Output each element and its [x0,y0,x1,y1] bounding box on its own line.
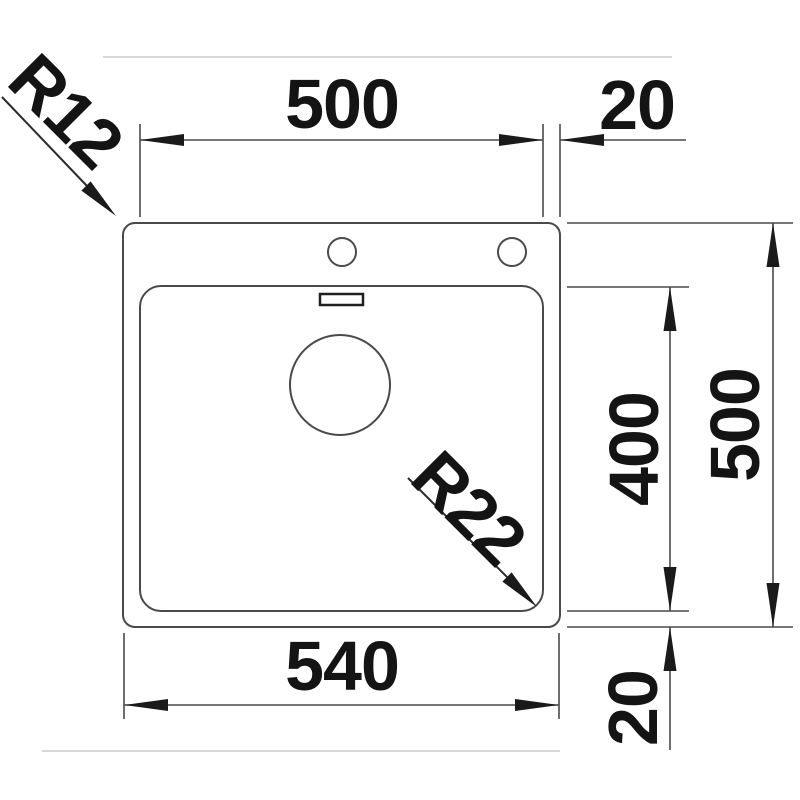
arrowhead-rim-offset-bottom [664,627,677,671]
arrowhead-bowl-depth-top [664,287,677,331]
arrowhead-bowl-width-left [140,134,184,146]
overflow-slot [320,294,363,305]
dimension-label-rim-offset-bottom: 20 [594,670,672,746]
arrowhead-overall-depth-bottom [767,583,780,627]
arrowhead-outer-radius [81,181,116,216]
drain-hole [290,335,390,435]
tap-hole-left [328,238,356,266]
arrowhead-rim-offset-top [560,134,604,146]
arrowhead-bowl-width-right [499,134,543,146]
dimension-label-bowl-depth: 400 [595,392,673,506]
radius-label-bowl-corner: R22 [397,436,541,580]
radius-label-outer-corner: R12 [0,39,138,183]
tap-hole-right [498,238,526,266]
dimension-label-overall-depth: 500 [696,368,774,482]
technical-drawing-canvas: 500 20 540 500 400 20 R12 R22 [0,0,800,800]
arrowhead-bowl-depth-bottom [664,567,677,611]
arrowhead-bowl-radius [502,572,537,607]
arrowhead-overall-width-right [515,699,559,711]
arrowhead-overall-depth-top [767,223,780,267]
sink-dimension-drawing: 500 20 540 500 400 20 R12 R22 [0,0,800,800]
dimension-label-bowl-width: 500 [285,65,399,143]
dimension-label-rim-offset-top: 20 [599,66,675,144]
dimension-label-overall-width: 540 [285,627,399,705]
arrowhead-overall-width-left [124,699,168,711]
